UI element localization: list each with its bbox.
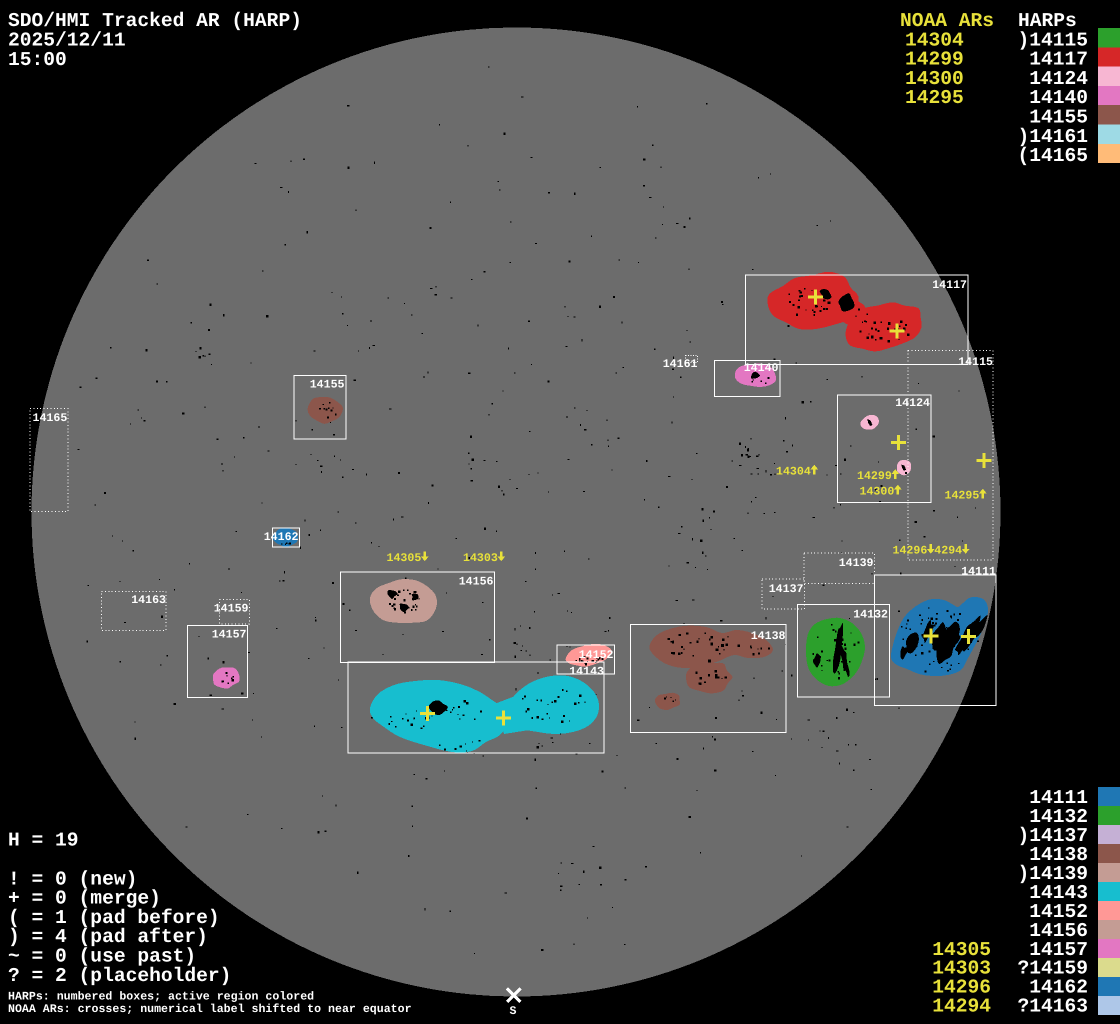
svg-text:14305: 14305 — [387, 552, 422, 565]
svg-text:14138: 14138 — [751, 630, 786, 643]
svg-text:14115: 14115 — [958, 356, 993, 369]
svg-text:? = 2 (placeholder): ? = 2 (placeholder) — [8, 965, 231, 987]
svg-text:14156: 14156 — [459, 576, 494, 589]
svg-text:14139: 14139 — [839, 557, 874, 570]
svg-text:14163: 14163 — [131, 594, 166, 607]
svg-text:14132: 14132 — [853, 609, 888, 622]
svg-text:14295: 14295 — [905, 87, 964, 109]
svg-text:14165: 14165 — [33, 412, 68, 425]
svg-text:14124: 14124 — [895, 397, 930, 410]
svg-text:14295: 14295 — [945, 490, 980, 503]
svg-text:14300: 14300 — [860, 486, 895, 499]
svg-text:H = 19: H = 19 — [8, 830, 79, 852]
svg-text:14161: 14161 — [663, 358, 698, 371]
svg-text:?14163: ?14163 — [1017, 996, 1088, 1018]
svg-text:14117: 14117 — [932, 279, 967, 292]
svg-text:14296: 14296 — [893, 545, 928, 558]
svg-text:S: S — [510, 1005, 517, 1018]
svg-text:14304: 14304 — [776, 466, 811, 479]
svg-text:14111: 14111 — [961, 566, 996, 579]
svg-text:14137: 14137 — [769, 583, 804, 596]
svg-text:4294: 4294 — [934, 545, 962, 558]
svg-text:14143: 14143 — [569, 666, 604, 679]
svg-text:15:00: 15:00 — [8, 49, 67, 71]
svg-text:14162: 14162 — [264, 531, 299, 544]
svg-text:14159: 14159 — [214, 603, 249, 616]
svg-text:14155: 14155 — [310, 379, 345, 392]
svg-text:NOAA ARs: crosses; numerical l: NOAA ARs: crosses; numerical label shift… — [8, 1003, 412, 1016]
svg-text:14140: 14140 — [744, 362, 779, 375]
svg-text:14299: 14299 — [857, 470, 892, 483]
svg-text:HARPs: numbered boxes; active: HARPs: numbered boxes; active region col… — [8, 991, 314, 1004]
svg-text:14294: 14294 — [932, 996, 991, 1018]
svg-text:14157: 14157 — [212, 629, 247, 642]
svg-text:14152: 14152 — [579, 649, 614, 662]
svg-text:(14165: (14165 — [1017, 145, 1088, 167]
svg-text:14303: 14303 — [463, 552, 498, 565]
